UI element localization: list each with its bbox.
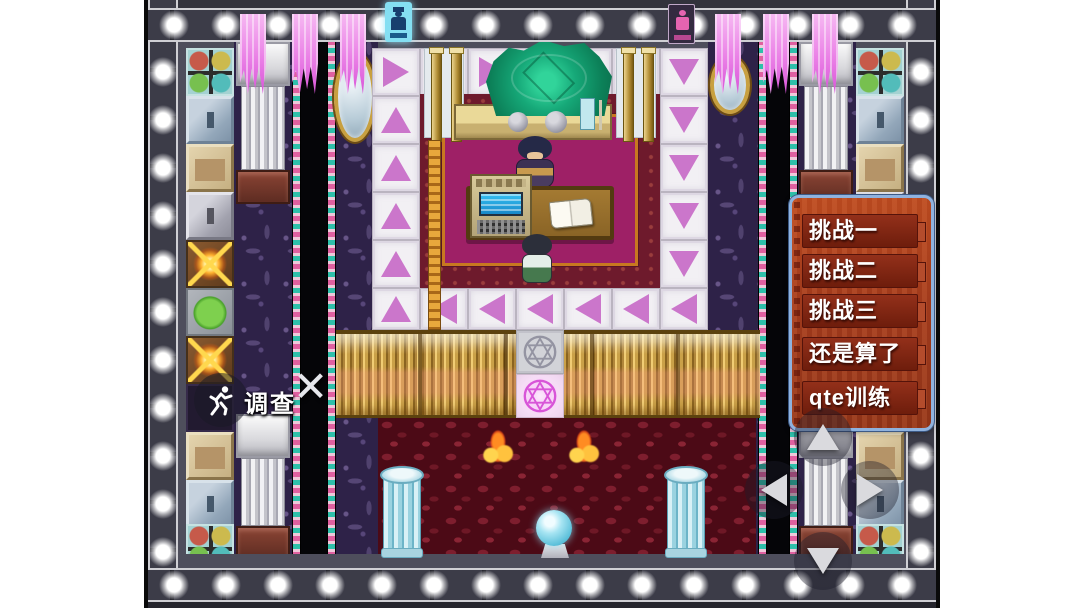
run-skill-button[interactable]	[194, 373, 248, 427]
game-screen: 挑战一 挑战二 挑战三 还是算了 qte训练 调查 ✕	[0, 0, 1080, 608]
gold-pillar	[643, 50, 654, 142]
arrow-tile-down	[660, 240, 708, 288]
arrow-tile-up	[372, 144, 420, 192]
gate-tile-gray	[516, 330, 564, 374]
dpad-right-icon	[857, 474, 883, 506]
menu-item-challenge-1[interactable]: 挑战一	[802, 214, 918, 248]
tile-hearth	[186, 144, 234, 192]
fire	[480, 424, 516, 464]
fire	[566, 424, 602, 464]
menu-item-nevermind[interactable]: 还是算了	[802, 337, 918, 371]
menu-item-challenge-2[interactable]: 挑战二	[802, 254, 918, 288]
menu-item-challenge-3[interactable]: 挑战三	[802, 294, 918, 328]
gold-pillar	[623, 50, 634, 142]
altar-sign	[580, 98, 595, 130]
arrow-tile-up	[372, 240, 420, 288]
altar-orb	[545, 111, 567, 133]
close-x-icon[interactable]: ✕	[293, 366, 328, 408]
light-strip-left	[148, 0, 178, 608]
gate-tile-pink	[516, 374, 564, 418]
dpad-up-button[interactable]	[794, 408, 852, 466]
tile-stone-blue	[186, 480, 234, 528]
margin-right	[940, 0, 1080, 608]
arrow-tile-up	[372, 192, 420, 240]
arrow-tile-down	[660, 48, 708, 96]
tile-bush	[186, 288, 234, 336]
arrow-tile-down	[660, 96, 708, 144]
cyan-pillar	[664, 466, 708, 558]
arrow-tile-right	[372, 48, 420, 96]
arrow-tile-up	[372, 96, 420, 144]
tile-buttons	[186, 48, 234, 96]
hexagram-circle-gray-icon	[521, 333, 559, 371]
tile-buttons	[856, 48, 904, 96]
arrow-tile-left	[612, 288, 660, 330]
runner-icon	[204, 383, 238, 417]
arrow-tile-left	[516, 288, 564, 330]
crystal-ball-stand	[541, 544, 569, 558]
tile-hearth	[856, 144, 904, 192]
crystal-ball	[536, 510, 572, 546]
hexagram-circle-pink-icon	[521, 377, 559, 415]
dpad-left-icon	[761, 474, 787, 506]
marble-column	[236, 414, 290, 560]
investigate-label[interactable]: 调查	[244, 384, 296, 419]
poster-man-icon	[385, 2, 412, 42]
arrow-tile-down	[660, 144, 708, 192]
dpad-down-icon	[807, 548, 839, 574]
terminal	[470, 174, 532, 238]
dpad-down-button[interactable]	[794, 532, 852, 590]
gold-pillar	[431, 50, 442, 142]
poster-woman-icon	[668, 4, 695, 44]
player-character	[518, 234, 556, 284]
edge-line-left	[144, 0, 148, 608]
arrow-tile-left	[660, 288, 708, 330]
arrow-tile-left	[468, 288, 516, 330]
dpad-right-button[interactable]	[841, 461, 899, 519]
altar-orb	[508, 112, 528, 132]
arrow-tile-up	[372, 288, 420, 330]
arrow-tile-down	[660, 192, 708, 240]
arrow-tile-left	[564, 288, 612, 330]
tile-stone-blue	[186, 96, 234, 144]
dpad-left-button[interactable]	[745, 461, 803, 519]
open-book	[549, 198, 594, 229]
cyan-pillar	[380, 466, 424, 558]
trim-strip	[327, 40, 336, 556]
margin-left	[0, 0, 144, 608]
tile-spark	[186, 240, 234, 288]
tile-stone-gray	[186, 192, 234, 240]
choice-menu: 挑战一 挑战二 挑战三 还是算了 qte训练	[789, 195, 934, 431]
tile-hearth	[186, 432, 234, 480]
trim-strip	[292, 40, 301, 556]
altar-staff	[599, 100, 602, 130]
dpad-up-icon	[807, 424, 839, 450]
bottom-dark-band	[148, 602, 936, 608]
tile-stone-blue	[856, 96, 904, 144]
ladder-runner	[428, 140, 441, 330]
